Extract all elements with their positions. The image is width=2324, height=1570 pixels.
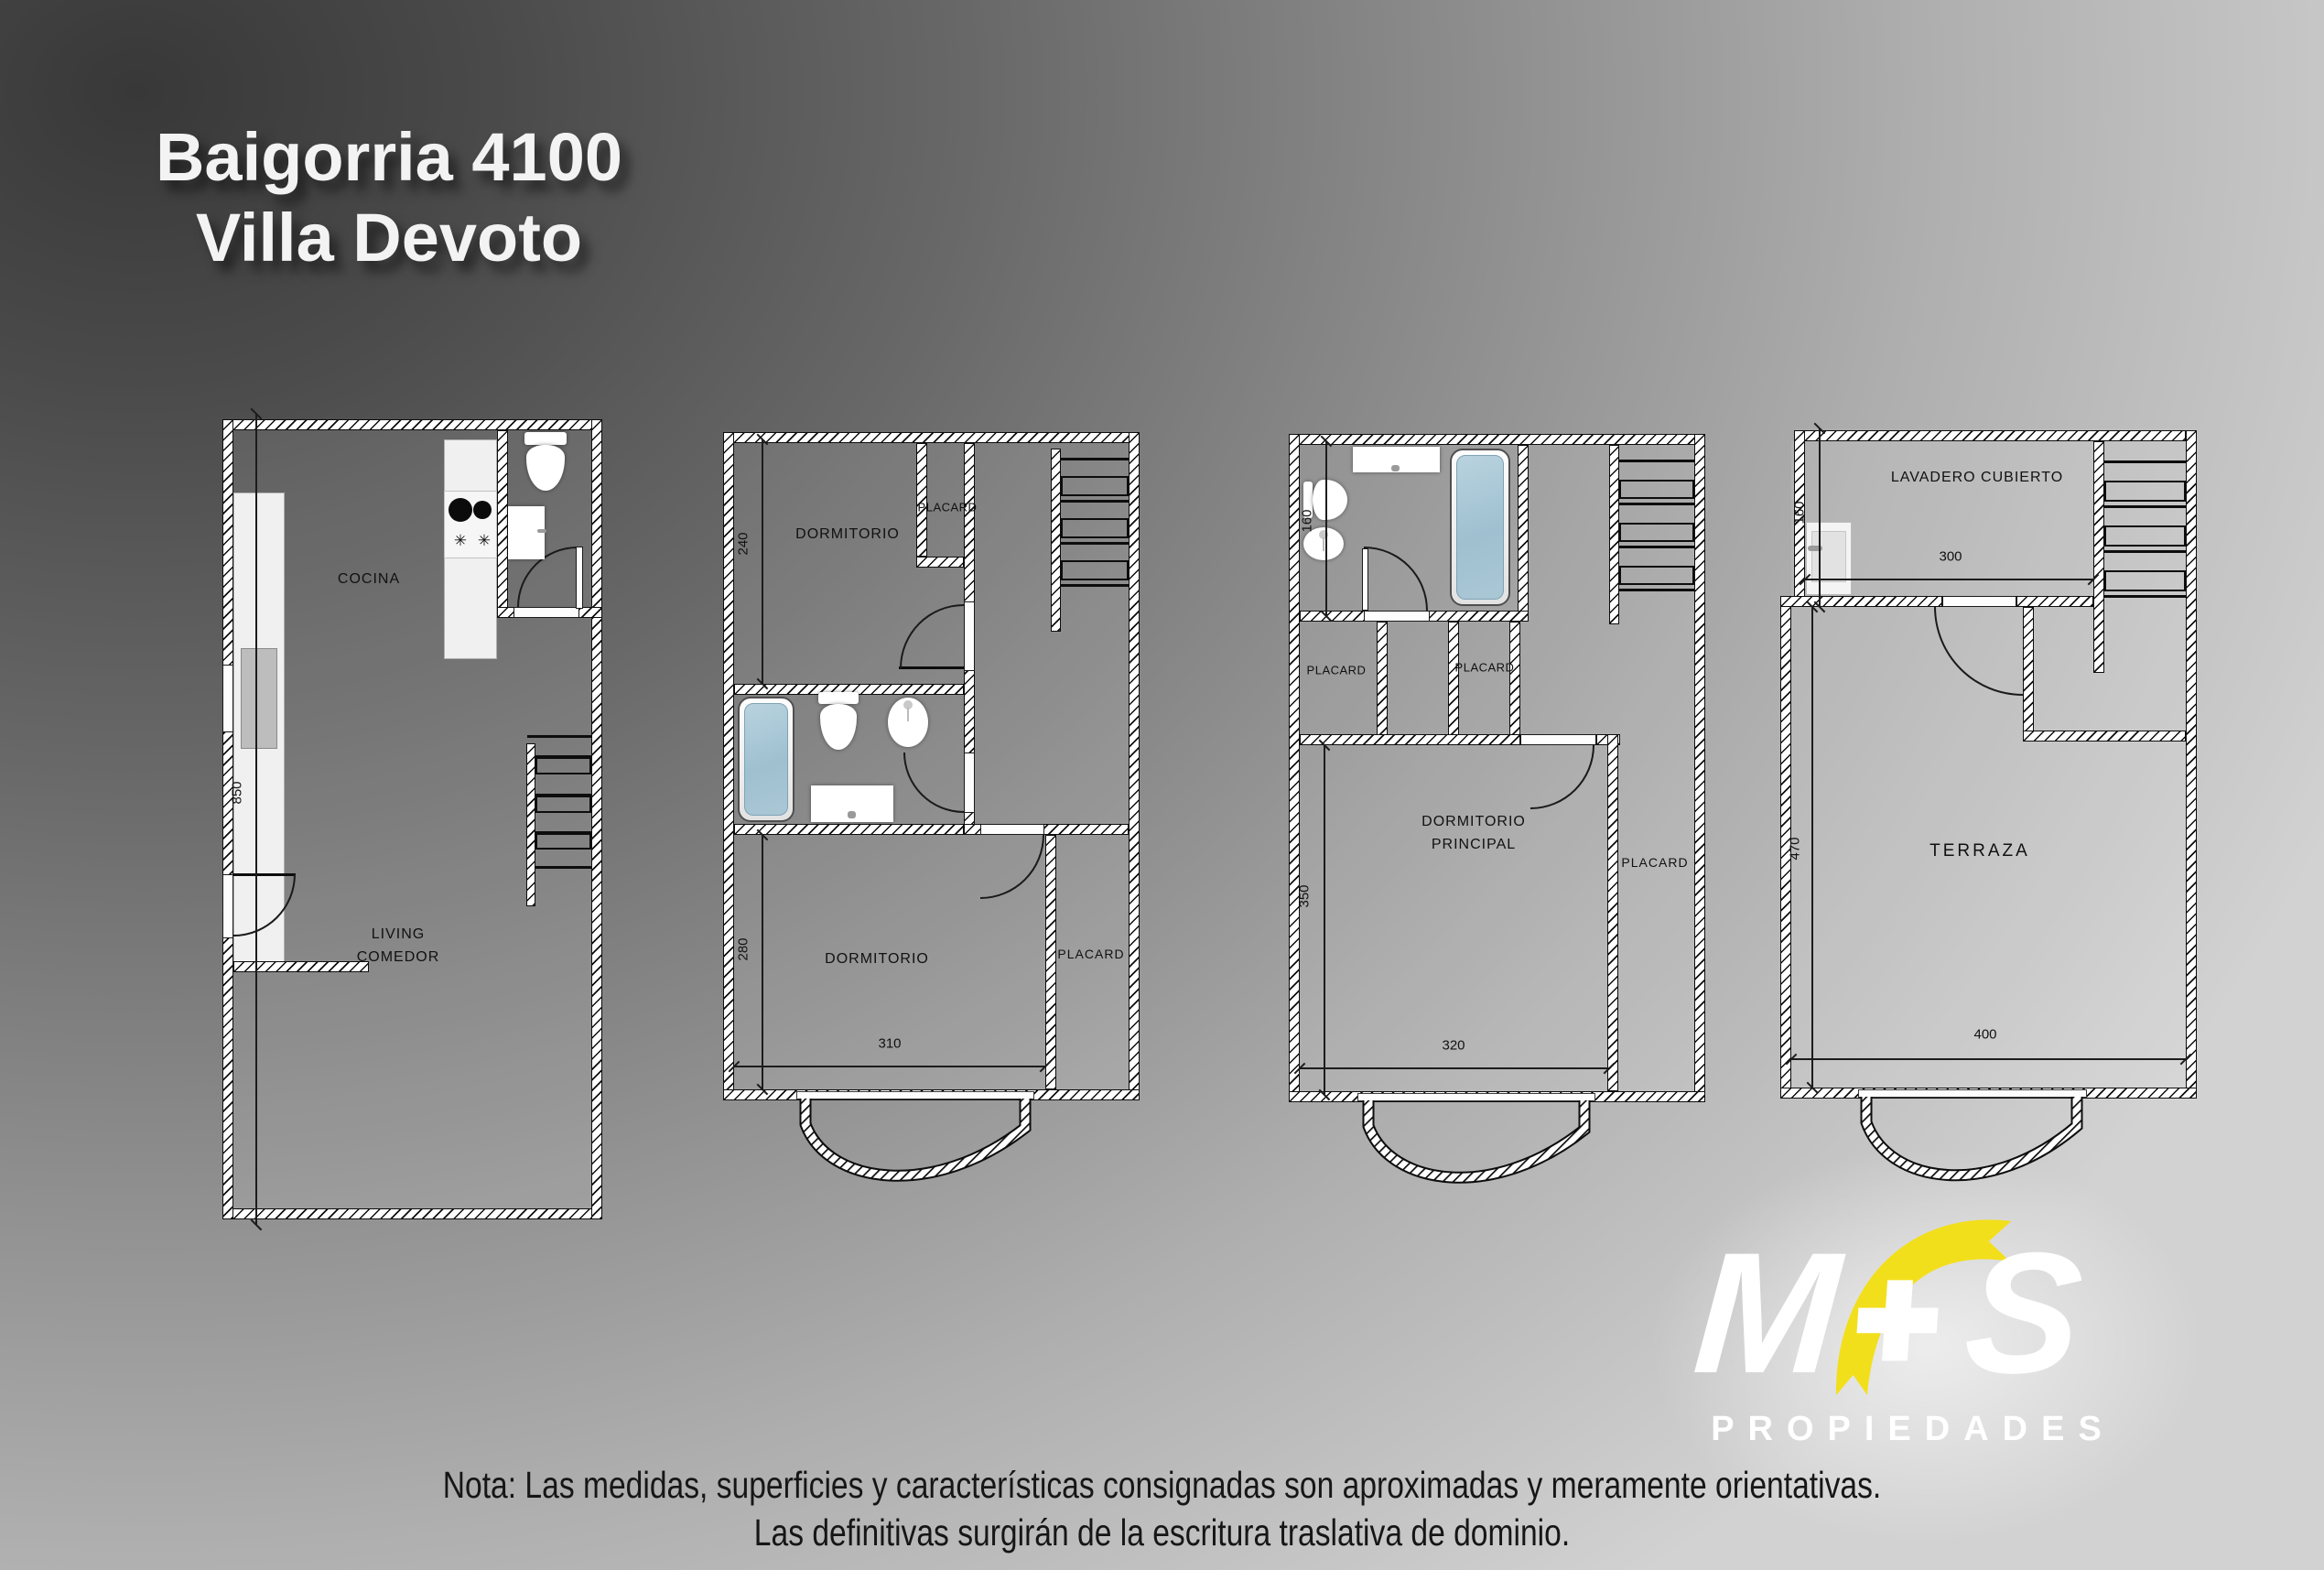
bathtub-basin	[744, 703, 788, 816]
faucet	[537, 529, 546, 533]
floorplan-2: DORMITORIO PLACARD DORMITORIO PLACARD 24…	[723, 432, 1140, 1212]
faucet	[1391, 465, 1400, 471]
stair-tread	[1619, 460, 1694, 462]
room-label-dormitorio: DORMITORIO	[825, 951, 929, 968]
dimension-line	[734, 1066, 1045, 1067]
disclaimer-line1: Nota: Las medidas, superficies y caracte…	[210, 1461, 2115, 1509]
floorplan-1: ✳ ✳ COCINA LIVING COMEDOR 850	[222, 419, 602, 1219]
toilet	[818, 692, 859, 704]
door-opening	[1364, 611, 1430, 622]
property-title: Baigorria 4100 Villa Devoto	[96, 117, 682, 278]
balcony-wall	[794, 1099, 1036, 1212]
door-opening	[964, 753, 975, 813]
stair-stringer-wall	[526, 743, 535, 906]
stair-tread	[2104, 550, 2186, 553]
burner-flame-icon: ✳	[478, 532, 491, 550]
stair-tread	[1061, 518, 1129, 538]
exterior-wall	[1289, 434, 1705, 445]
bathtub	[738, 697, 794, 822]
stair-tread	[1619, 503, 1694, 505]
stair-tread	[2104, 505, 2186, 508]
burner-flame-icon: ✳	[454, 532, 467, 550]
room-label-placard: PLACARD	[1307, 664, 1367, 677]
dimension-label: 350	[1297, 884, 1313, 907]
stair-tread	[1619, 480, 1694, 499]
dimension-label: 310	[878, 1036, 901, 1052]
dimension-label: 240	[736, 532, 751, 555]
stair-tread	[1619, 546, 1694, 548]
interior-wall	[2023, 731, 2186, 742]
agency-logo-subtitle: PROPIEDADES	[1702, 1410, 2124, 1449]
floorplan-4: LAVADERO CUBIERTO TERRAZA 160 300 470 40…	[1780, 430, 2197, 1214]
dimension-line	[1324, 745, 1325, 1095]
bathtub-basin	[1456, 455, 1504, 600]
stair-tread	[1061, 560, 1129, 580]
logo-plus-sign: +	[1849, 1240, 1941, 1400]
window-opening	[222, 665, 233, 732]
room-label-dormitorio-principal: PRINCIPAL	[1432, 837, 1516, 853]
dimension-label: 280	[736, 937, 751, 960]
room-label-placard: PLACARD	[1057, 947, 1124, 961]
stair-tread	[1061, 542, 1129, 545]
stair-tread	[1619, 589, 1694, 591]
property-title-line2: Villa Devoto	[96, 198, 682, 278]
stair-stringer-wall	[1609, 445, 1619, 624]
room-label-placard: PLACARD	[918, 501, 978, 514]
interior-wall	[233, 961, 369, 972]
stair-tread	[2104, 481, 2186, 502]
room-label-terraza: TERRAZA	[1929, 841, 2030, 861]
door-opening	[222, 874, 233, 938]
stair-tread	[527, 735, 591, 738]
bathtub	[1450, 449, 1510, 606]
interior-wall	[734, 824, 964, 835]
dimension-line	[255, 414, 257, 1225]
interior-wall	[916, 557, 964, 568]
dimension-label: 160	[1792, 501, 1808, 524]
stair-tread	[535, 866, 591, 869]
dimension-line	[1325, 441, 1327, 616]
exterior-wall	[591, 419, 602, 1219]
agency-logo: M + S PROPIEDADES	[1693, 1225, 2151, 1463]
stair-tread	[535, 796, 591, 813]
stair-tread	[2104, 595, 2186, 598]
dimension-line	[1805, 579, 2093, 580]
stair-tread	[1061, 476, 1129, 496]
laundry-sink-basin	[1811, 531, 1846, 582]
interior-wall	[1509, 622, 1520, 745]
stair-tread	[1061, 458, 1129, 460]
dimension-line	[1300, 1067, 1609, 1069]
door-opening	[1520, 734, 1596, 745]
interior-wall	[1518, 445, 1529, 622]
exterior-wall	[723, 432, 1140, 443]
exterior-wall	[222, 419, 233, 1219]
faucet	[848, 811, 856, 818]
kitchen-sink	[241, 648, 277, 749]
door-leaf	[576, 547, 583, 609]
dimension-line	[762, 835, 763, 1089]
stove-burner-icon	[449, 498, 472, 522]
door-opening	[964, 601, 975, 671]
room-label-living: LIVING	[372, 926, 425, 943]
dimension-label: 470	[1788, 837, 1803, 860]
stair-tread	[535, 757, 591, 774]
door-opening	[1942, 596, 2016, 607]
interior-wall	[497, 430, 508, 618]
exterior-wall	[222, 419, 602, 430]
room-label-placard: PLACARD	[1455, 661, 1515, 675]
door-opening	[513, 607, 579, 618]
disclaimer-note: Nota: Las medidas, superficies y caracte…	[0, 1461, 2324, 1556]
exterior-wall	[723, 432, 734, 1100]
exterior-wall	[1289, 434, 1300, 1102]
interior-wall	[2023, 607, 2034, 742]
interior-wall	[1300, 734, 1520, 745]
room-label-cocina: COCINA	[338, 571, 400, 588]
stove-burner-icon	[473, 501, 492, 519]
stair-tread	[1619, 523, 1694, 542]
stair-tread	[1619, 566, 1694, 585]
dimension-line	[1811, 607, 1813, 1088]
exterior-wall	[1129, 432, 1140, 1100]
stair-tread	[1061, 584, 1129, 587]
room-label-dormitorio-principal: DORMITORIO	[1421, 814, 1526, 830]
stair-stringer-wall	[1051, 449, 1061, 632]
balcony-wall	[1357, 1100, 1595, 1214]
exterior-wall	[1794, 430, 2186, 441]
flyer-canvas: { "title": { "line1": "Baigorria 4100", …	[0, 0, 2324, 1570]
floorplan-3: PLACARD PLACARD PLACARD DORMITORIO PRINC…	[1289, 434, 1705, 1214]
bathroom-sink	[508, 506, 545, 559]
interior-wall	[1448, 622, 1459, 745]
bidet	[888, 698, 928, 747]
room-label-dormitorio: DORMITORIO	[795, 526, 900, 543]
interior-wall	[2016, 596, 2093, 607]
dimension-line	[1791, 1058, 2186, 1060]
stair-stringer-wall	[2093, 441, 2104, 673]
dimension-label: 320	[1442, 1038, 1465, 1054]
stair-tread	[535, 833, 591, 850]
disclaimer-line2: Las definitivas surgirán de la escritura…	[210, 1509, 2115, 1556]
dimension-label: 850	[230, 781, 245, 804]
property-title-line1: Baigorria 4100	[96, 117, 682, 198]
logo-letter-s: S	[1960, 1214, 2089, 1412]
stair-tread	[1061, 500, 1129, 503]
interior-wall	[1045, 835, 1056, 1089]
stair-tread	[2104, 460, 2186, 463]
room-label-lavadero: LAVADERO CUBIERTO	[1891, 470, 2063, 486]
exterior-wall	[222, 1208, 602, 1219]
interior-wall	[1780, 596, 1942, 607]
room-label-placard: PLACARD	[1621, 855, 1688, 870]
exterior-wall	[2186, 430, 2197, 1099]
interior-wall	[1607, 734, 1618, 1091]
room-label-comedor: COMEDOR	[357, 949, 440, 966]
dimension-label: 160	[1300, 509, 1315, 532]
dimension-label: 400	[1973, 1027, 1996, 1043]
interior-wall	[1377, 622, 1388, 745]
stair-tread	[2104, 525, 2186, 547]
agency-logo-wordmark: M + S	[1687, 1225, 2157, 1408]
toilet	[524, 432, 567, 445]
stair-tread	[2104, 570, 2186, 591]
dimension-label: 300	[1939, 549, 1962, 565]
exterior-wall	[1694, 434, 1705, 1102]
door-opening	[980, 824, 1044, 835]
dimension-line	[762, 439, 763, 684]
